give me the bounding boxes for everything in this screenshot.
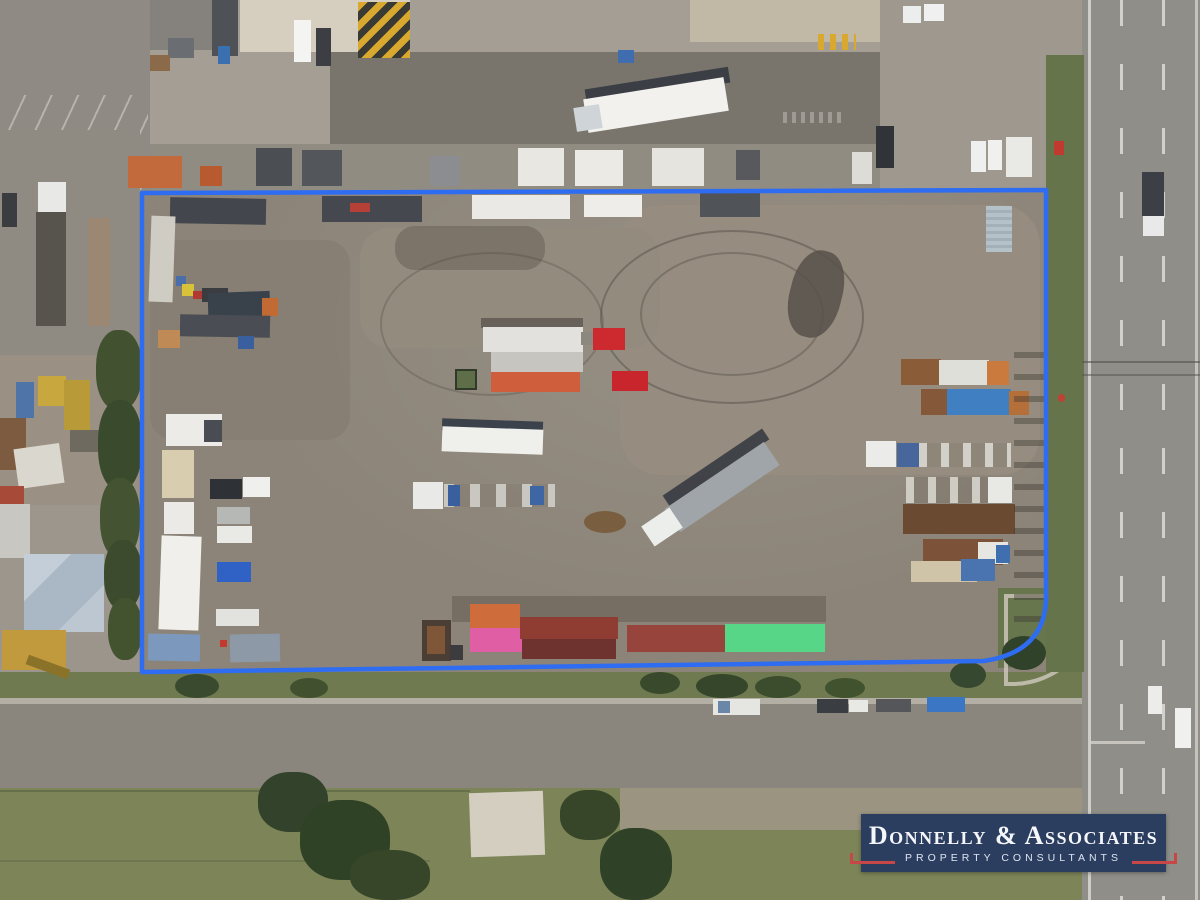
green-box-small xyxy=(455,369,477,390)
tarp-container-gray xyxy=(230,634,280,663)
container-orange-center xyxy=(491,372,580,392)
crate-dark-2 xyxy=(302,150,342,186)
truck-cab-mid xyxy=(413,482,443,509)
white-building-west xyxy=(0,504,30,558)
blue-dumpster-2 xyxy=(618,50,634,63)
parked-car-dark xyxy=(210,479,242,499)
company-logo: Donnelly & Associates PROPERTY CONSULTAN… xyxy=(861,814,1166,872)
white-van-north xyxy=(294,20,311,62)
crate-dark-3 xyxy=(736,150,760,180)
box-truck-cab-dark xyxy=(204,420,222,442)
parked-pickup-white xyxy=(216,609,259,626)
logo-bracket-right-icon xyxy=(1132,853,1177,864)
east-r6-truck-blue xyxy=(996,545,1010,563)
scrap-misc xyxy=(70,430,100,452)
blue-car-nw xyxy=(238,336,254,349)
tree-line-west-2 xyxy=(98,400,142,490)
white-trailer-north-1 xyxy=(472,195,570,219)
container-pink-south xyxy=(470,628,523,652)
satellite-scene xyxy=(0,0,1200,900)
white-van-ne xyxy=(1006,137,1032,177)
roadside-hydrant xyxy=(1058,394,1065,402)
east-r2-rust-end xyxy=(921,389,949,415)
crate-topleft-2 xyxy=(150,55,170,71)
logo-tagline: PROPERTY CONSULTANTS xyxy=(905,852,1122,864)
pallet-bundle-3 xyxy=(652,148,704,186)
parked-car-blue xyxy=(217,562,251,582)
street-suv-dark xyxy=(817,699,848,713)
lane-line-solid-east xyxy=(1195,0,1198,900)
roadside-red-car xyxy=(1054,141,1064,155)
semi-cab-north xyxy=(573,104,602,132)
road-stop-line xyxy=(1090,741,1145,744)
corner-bush-se xyxy=(1002,636,1046,670)
hazard-stripe-zone xyxy=(358,2,410,58)
power-line-2 xyxy=(1082,374,1200,376)
east-r3-cab-white xyxy=(866,441,896,467)
lane-line-dashed-2 xyxy=(1162,0,1165,900)
left-lot-mid xyxy=(0,130,140,360)
factory-mid-band xyxy=(140,144,884,192)
white-trailer-cluttered-nw xyxy=(149,216,176,303)
white-van-west xyxy=(164,502,194,534)
white-trailer-north-2 xyxy=(584,195,642,217)
pallet-bundle-4 xyxy=(852,152,872,184)
crate-topleft-1 xyxy=(168,38,194,58)
orange-machinery-north xyxy=(128,156,182,188)
street-car-blue xyxy=(927,697,965,712)
logo-bracket-left-icon xyxy=(850,853,895,864)
container-orange-south xyxy=(470,604,520,628)
chassis-mid-blue-1 xyxy=(448,485,460,506)
road-truck-cab xyxy=(1143,216,1164,236)
ribbed-container-ne xyxy=(986,206,1012,252)
tan-trailer-west xyxy=(162,450,194,498)
dark-container-nw-3 xyxy=(180,314,270,338)
scrap-red-shed xyxy=(0,486,24,506)
scrap-yellow-machine-1 xyxy=(38,376,66,406)
east-r1-white-mid xyxy=(939,360,989,385)
tree-line-west-5 xyxy=(108,598,142,660)
street-trailer-white xyxy=(849,700,868,712)
east-r2-blue-tarp xyxy=(947,389,1011,415)
east-r7-truck-blue xyxy=(961,559,995,581)
red-car-yard xyxy=(612,371,648,391)
container-darkred-south xyxy=(520,617,618,639)
forklift-red xyxy=(593,328,625,350)
road-verge-east xyxy=(1046,55,1084,672)
verge-tree-6 xyxy=(825,678,865,698)
container-maroon-south xyxy=(522,639,616,659)
field-tree-mass-5 xyxy=(600,828,672,900)
container-brownred-south xyxy=(627,625,726,652)
slate-container-nw-2 xyxy=(322,196,422,222)
dark-container-north xyxy=(700,193,760,217)
verge-tree-3 xyxy=(640,672,680,694)
pavement-text-faint xyxy=(783,112,841,123)
parked-car-white-1 xyxy=(243,477,270,497)
verge-tree-7 xyxy=(950,662,986,688)
lane-line-dashed-1 xyxy=(1120,0,1123,900)
field-tree-mass-4 xyxy=(560,790,620,840)
semi-cab-west xyxy=(38,182,66,212)
street-car-pickup-window xyxy=(718,701,730,713)
crate-dark-1 xyxy=(256,148,292,186)
slate-container-nw-1 xyxy=(170,197,266,225)
field-fence-line-1 xyxy=(0,790,470,792)
container-white-mid xyxy=(442,426,544,455)
crate-gray xyxy=(430,156,460,186)
main-road xyxy=(1082,0,1200,900)
blue-hip-roof-building xyxy=(24,554,104,632)
white-car-corner-1 xyxy=(903,6,921,23)
white-car-ne-1 xyxy=(971,141,986,172)
rust-trailer-west xyxy=(88,218,110,326)
logo-subtitle-row: PROPERTY CONSULTANTS xyxy=(850,852,1177,864)
scrap-white-tarp xyxy=(13,443,64,489)
concrete-ramp-south xyxy=(469,791,545,858)
verge-tree-4 xyxy=(696,674,748,698)
orange-machinery-small xyxy=(200,166,222,186)
white-car-ne-2 xyxy=(988,140,1002,170)
semi-trailer-west xyxy=(36,212,66,326)
east-r4-white-end xyxy=(988,477,1012,503)
dirt-patch-mid xyxy=(584,511,626,533)
dark-car-north xyxy=(316,28,331,66)
road-truck-trailer xyxy=(1142,172,1164,216)
street-car-gray xyxy=(876,699,911,712)
small-truck-south xyxy=(450,645,463,660)
east-r3-chassis xyxy=(919,443,1011,467)
container-white-center xyxy=(483,327,583,352)
road-car-white-2 xyxy=(1175,708,1191,748)
power-line-1 xyxy=(1082,361,1200,363)
verge-tree-1 xyxy=(175,674,219,698)
chassis-mid-blue-2 xyxy=(530,486,544,505)
dark-car-west xyxy=(2,193,17,227)
white-car-corner-2 xyxy=(924,4,944,21)
east-r1-orange-end xyxy=(987,361,1009,385)
small-red-marker xyxy=(220,640,227,647)
east-r3-blue xyxy=(897,443,919,467)
scrap-blue-container xyxy=(16,382,34,418)
scrap-yellow-machine-2 xyxy=(64,380,90,430)
tree-line-west-1 xyxy=(96,330,142,410)
tan-junk-blob xyxy=(158,330,180,348)
logo-company-name: Donnelly & Associates xyxy=(869,823,1158,849)
dark-truck-ne xyxy=(876,126,894,168)
container-gray-center xyxy=(491,352,583,372)
orange-machine-yard xyxy=(262,298,278,316)
verge-tree-5 xyxy=(755,676,801,698)
container-green-south xyxy=(725,624,825,652)
east-r5-rust-long xyxy=(903,504,1015,534)
pallet-bundle-1 xyxy=(518,148,564,186)
aerial-photo: Donnelly & Associates PROPERTY CONSULTAN… xyxy=(0,0,1200,900)
blue-dumpster-1 xyxy=(218,46,230,64)
south-street xyxy=(0,704,1084,788)
debris-strip-east xyxy=(1014,340,1044,622)
flatbed-rust-load xyxy=(427,626,445,654)
road-car-white-1 xyxy=(1148,686,1162,714)
parked-car-white-2 xyxy=(217,526,252,543)
parked-car-silver xyxy=(217,507,250,524)
long-white-trailer-west xyxy=(158,535,201,630)
verge-tree-2 xyxy=(290,678,328,698)
field-tree-mass-3 xyxy=(350,850,430,900)
pallet-bundle-2 xyxy=(575,150,623,186)
slate-container-red-label xyxy=(350,203,370,212)
tarp-container-blue xyxy=(148,634,200,662)
east-r1-rust-end xyxy=(901,359,941,385)
yellow-dash-markings xyxy=(818,34,856,50)
lane-line-solid-west xyxy=(1088,0,1091,900)
